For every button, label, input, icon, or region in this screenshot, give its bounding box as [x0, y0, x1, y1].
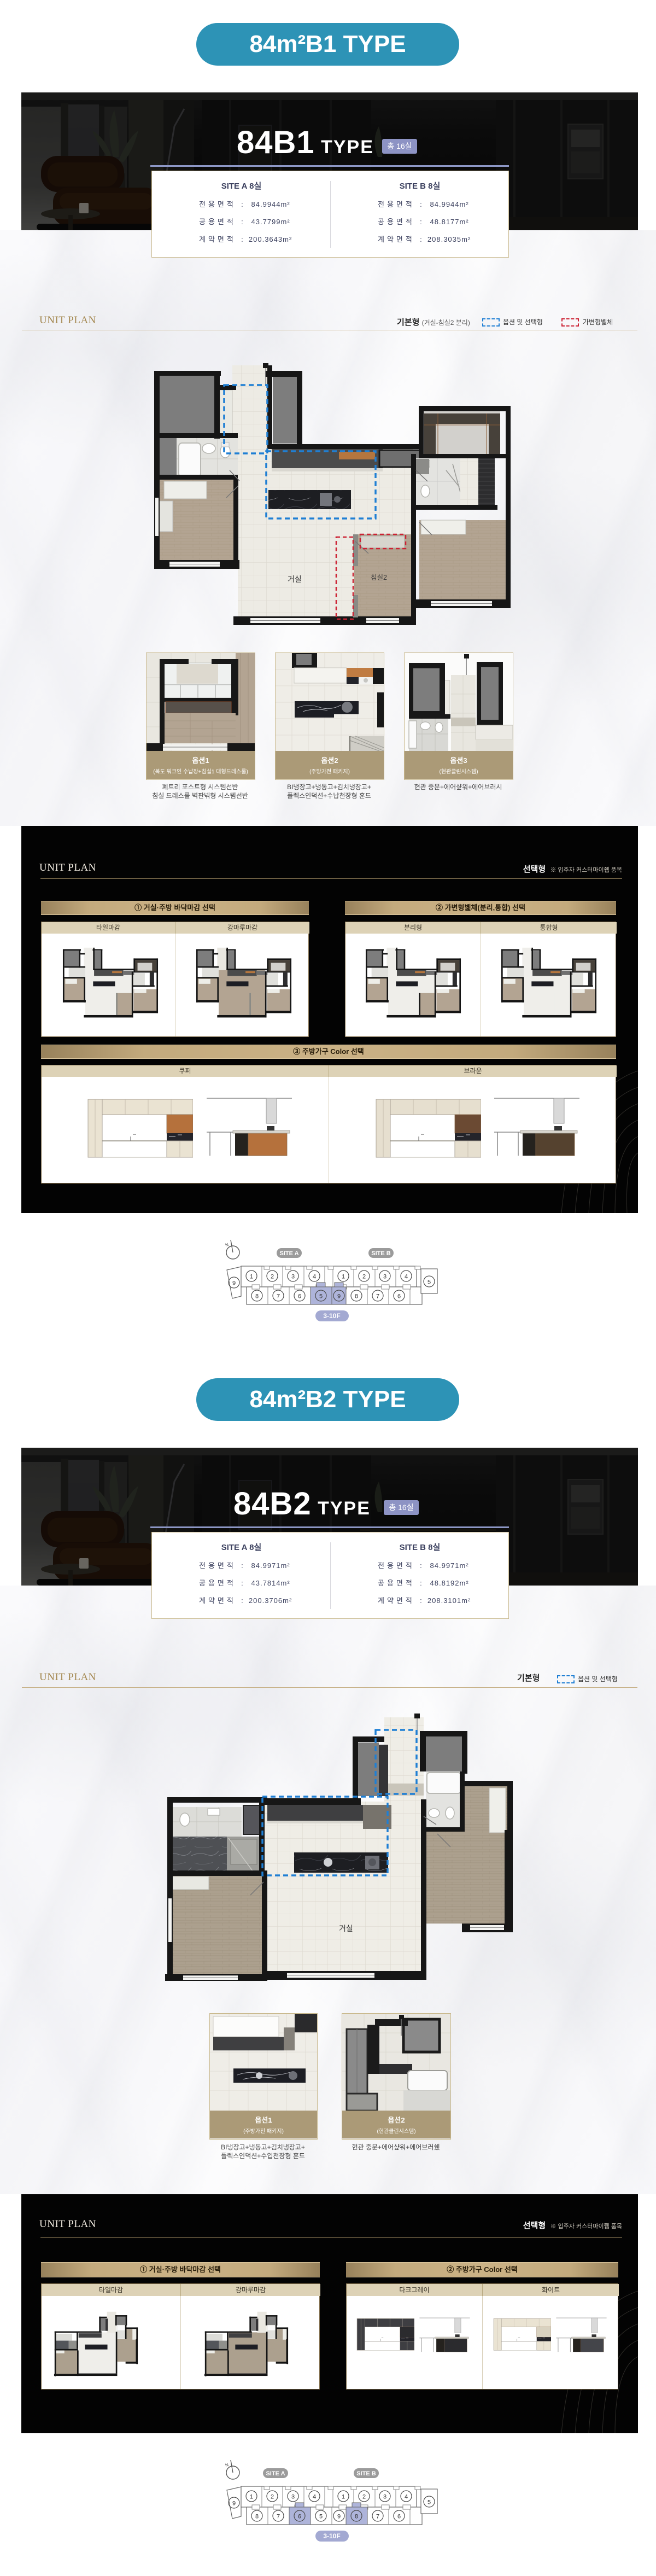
svg-text:거실: 거실 [288, 575, 302, 584]
svg-text:3: 3 [291, 2494, 295, 2501]
svg-text:4: 4 [313, 1274, 316, 1280]
svg-text:7: 7 [376, 1293, 379, 1300]
svg-text:9: 9 [337, 2514, 341, 2520]
svg-text:SITE B: SITE B [356, 2470, 376, 2477]
svg-text:SITE A: SITE A [279, 1250, 298, 1257]
svg-text:N: N [225, 2462, 229, 2468]
svg-text:7: 7 [277, 2514, 280, 2520]
svg-text:8: 8 [355, 1293, 358, 1300]
svg-text:2: 2 [362, 1274, 366, 1280]
svg-text:8: 8 [255, 1293, 259, 1300]
svg-text:3-10F: 3-10F [323, 1312, 340, 1320]
svg-text:SITE B: SITE B [371, 1250, 391, 1257]
svg-text:9: 9 [232, 1280, 236, 1287]
svg-text:3-10F: 3-10F [323, 2532, 340, 2540]
svg-text:8: 8 [255, 2514, 259, 2520]
svg-text:2: 2 [362, 2494, 366, 2501]
svg-text:SITE A: SITE A [266, 2470, 285, 2477]
svg-text:6: 6 [397, 1293, 401, 1300]
svg-text:8: 8 [355, 2514, 358, 2520]
svg-text:6: 6 [298, 1293, 301, 1300]
svg-text:7: 7 [277, 1293, 280, 1300]
svg-text:N: N [225, 1242, 229, 1248]
svg-text:5: 5 [427, 2499, 431, 2506]
svg-text:9: 9 [232, 2501, 236, 2507]
svg-text:1: 1 [250, 2494, 253, 2501]
svg-text:1: 1 [342, 2494, 345, 2501]
svg-text:2: 2 [271, 1274, 274, 1280]
svg-text:9: 9 [337, 1293, 341, 1300]
svg-text:2: 2 [271, 2494, 274, 2501]
svg-text:3: 3 [291, 1274, 295, 1280]
svg-text:6: 6 [298, 2514, 301, 2520]
svg-text:7: 7 [376, 2514, 379, 2520]
svg-text:거실: 거실 [339, 1924, 353, 1933]
svg-text:4: 4 [405, 2494, 408, 2501]
svg-text:5: 5 [427, 1279, 431, 1286]
svg-text:3: 3 [383, 1274, 386, 1280]
svg-text:침실2: 침실2 [371, 574, 387, 581]
svg-text:1: 1 [250, 1274, 253, 1280]
svg-text:4: 4 [405, 1274, 408, 1280]
svg-text:1: 1 [342, 1274, 345, 1280]
svg-text:5: 5 [319, 2514, 323, 2520]
svg-text:3: 3 [383, 2494, 386, 2501]
svg-text:6: 6 [397, 2514, 401, 2520]
svg-text:5: 5 [319, 1293, 323, 1300]
svg-text:4: 4 [313, 2494, 316, 2501]
